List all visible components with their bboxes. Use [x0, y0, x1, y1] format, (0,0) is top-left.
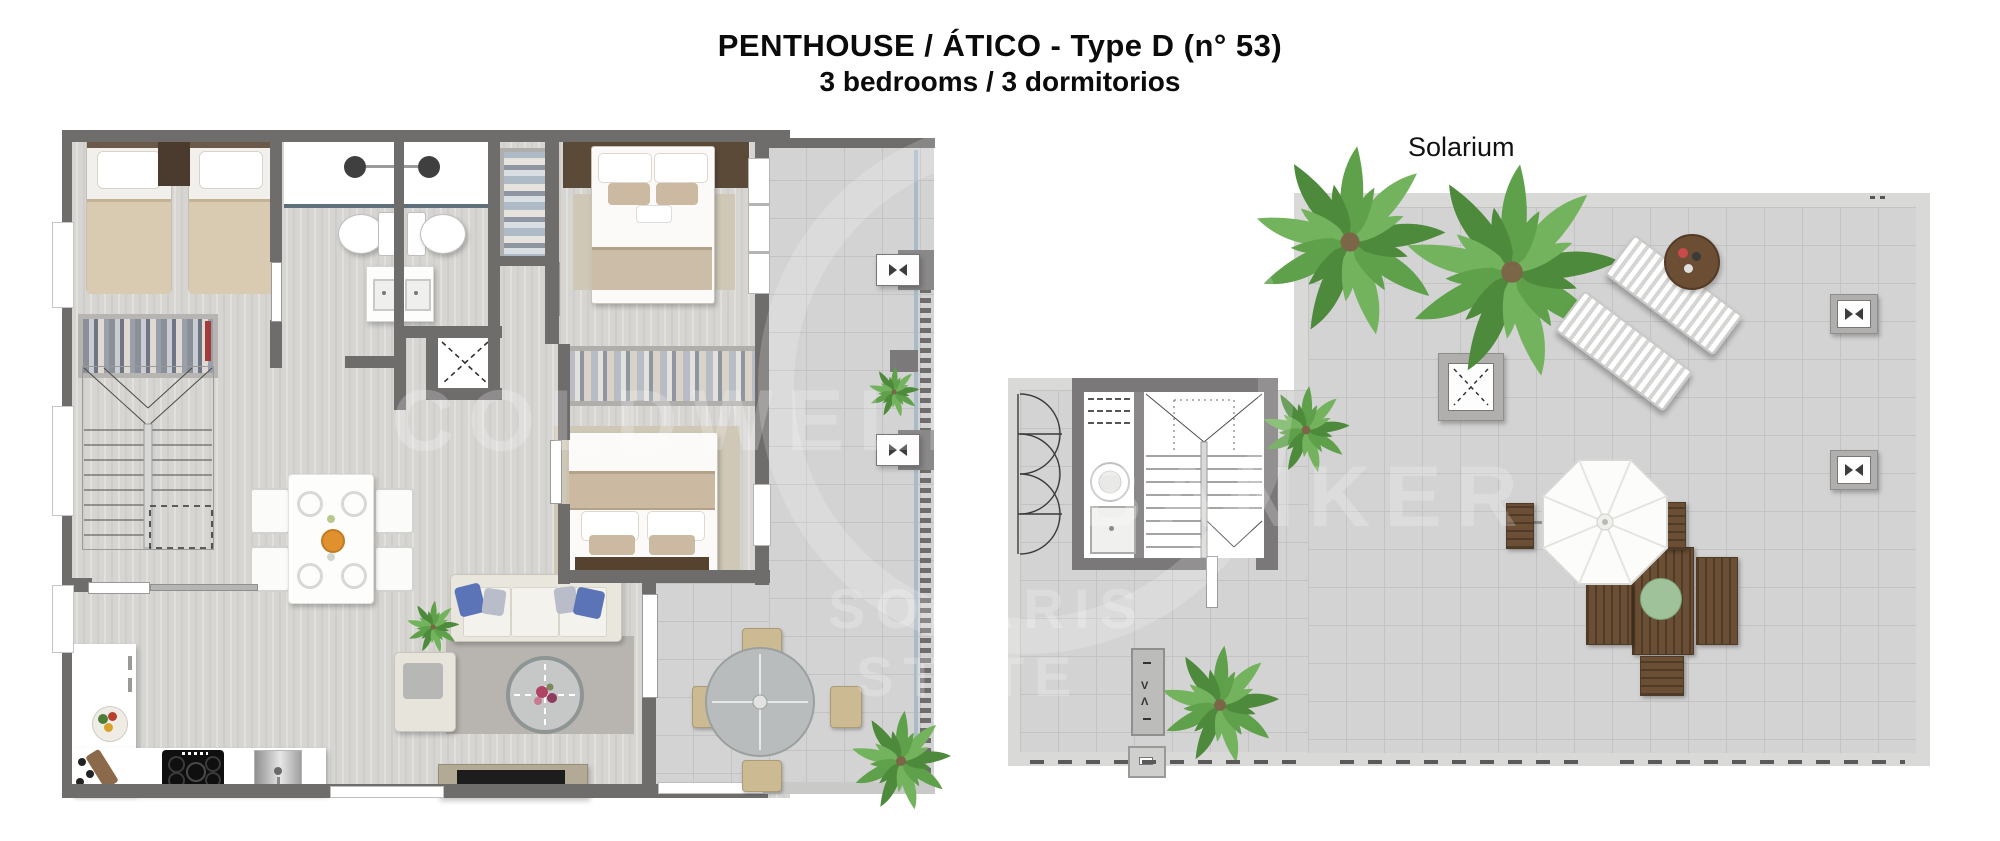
wall-segment	[1072, 378, 1278, 392]
shelf-line	[1088, 410, 1130, 412]
shelf-line	[1088, 398, 1130, 400]
drain-channel: V Λ	[1131, 648, 1165, 736]
louver-doors	[1016, 392, 1076, 556]
outdoor-bench	[1640, 656, 1684, 696]
railing	[1870, 196, 1890, 199]
plan-solarium: V Λ	[0, 0, 2000, 841]
outdoor-side-table	[1664, 234, 1720, 290]
staircase	[1144, 392, 1264, 558]
railing	[1340, 760, 1580, 764]
outdoor-bench	[1696, 557, 1738, 645]
outdoor-bench	[1586, 583, 1632, 645]
railing	[1030, 760, 1300, 764]
palm-tree-icon	[1258, 382, 1354, 478]
outdoor-side-table	[1506, 503, 1534, 549]
floorplan-canvas: PENTHOUSE / ÁTICO - Type D (n° 53) 3 bed…	[0, 0, 2000, 841]
railing	[1620, 760, 1905, 764]
wall-segment	[1256, 558, 1278, 570]
wall-segment	[1072, 558, 1208, 570]
wall-segment	[1008, 378, 1078, 390]
washing-machine-icon	[1090, 462, 1130, 502]
shower-tray	[1090, 506, 1136, 554]
ac-unit-icon	[1837, 456, 1871, 484]
parasol-umbrella-icon	[1538, 455, 1672, 589]
ac-unit-icon	[1837, 300, 1871, 328]
door-leaf	[1206, 556, 1218, 608]
shelf-line	[1088, 422, 1130, 424]
palm-tree-icon	[1155, 640, 1285, 770]
wall-segment	[1916, 193, 1930, 766]
